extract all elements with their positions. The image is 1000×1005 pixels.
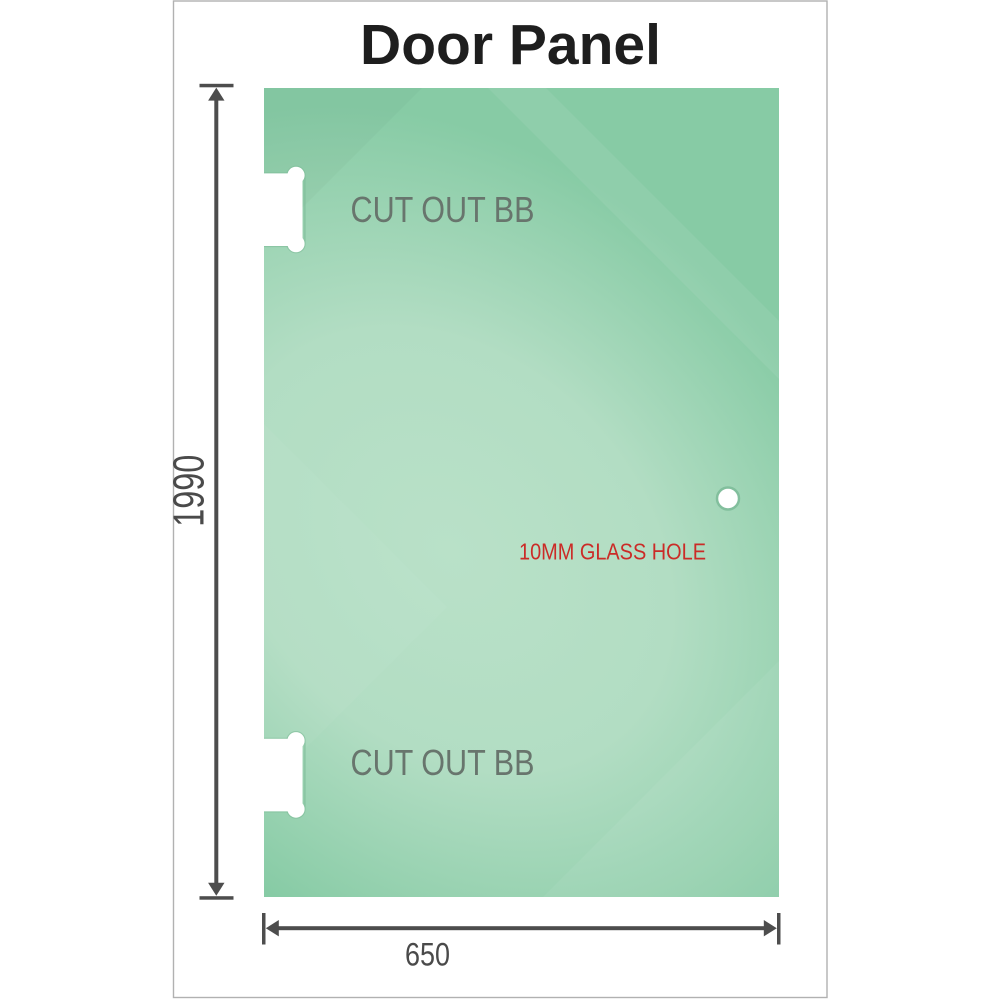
svg-text:1990: 1990: [166, 455, 214, 527]
svg-text:CUT OUT BB: CUT OUT BB: [351, 189, 535, 230]
svg-text:10MM GLASS HOLE: 10MM GLASS HOLE: [519, 539, 706, 565]
svg-text:CUT OUT BB: CUT OUT BB: [351, 742, 535, 783]
svg-text:Door Panel: Door Panel: [360, 13, 661, 77]
svg-text:650: 650: [405, 937, 450, 973]
